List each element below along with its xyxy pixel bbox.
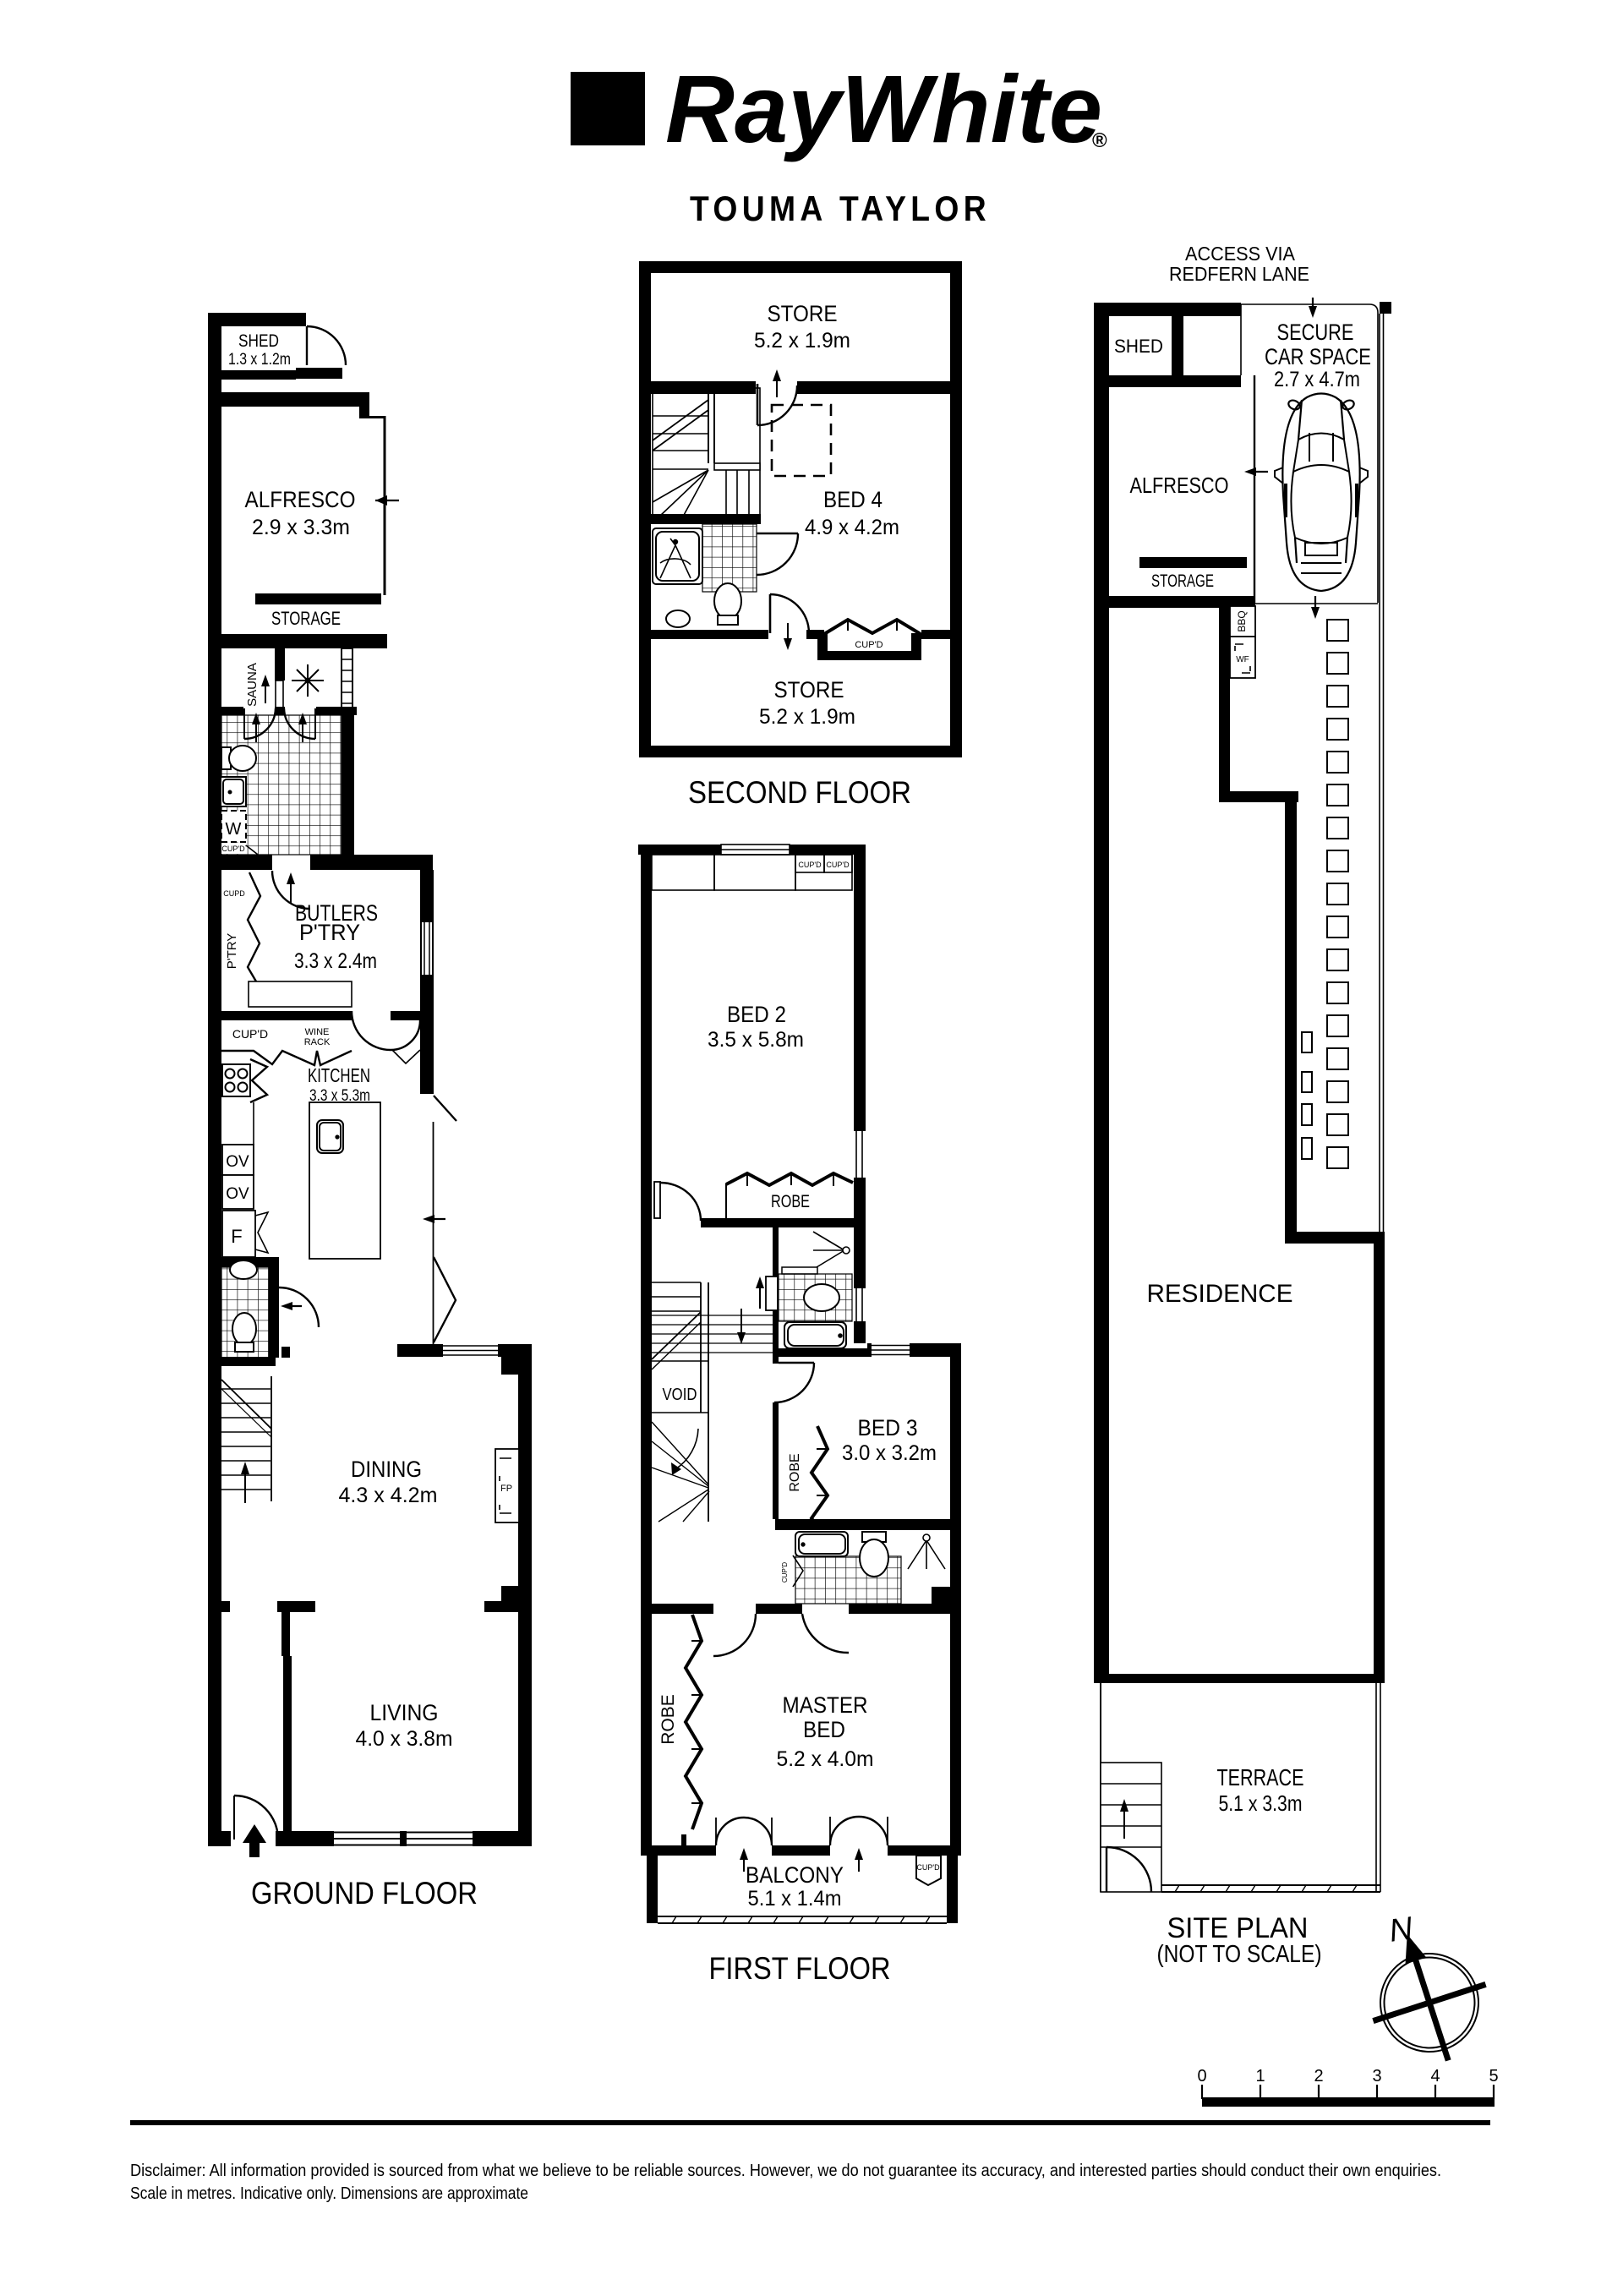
svg-text:BED 4: BED 4	[823, 487, 883, 512]
svg-text:SECURE: SECURE	[1277, 320, 1354, 345]
svg-text:KITCHEN: KITCHEN	[308, 1064, 370, 1086]
svg-text:5.2 x 1.9m: 5.2 x 1.9m	[759, 705, 855, 729]
svg-text:SAUNA: SAUNA	[245, 663, 260, 707]
svg-text:CUPD: CUPD	[223, 889, 245, 898]
svg-text:2.7 x 4.7m: 2.7 x 4.7m	[1274, 368, 1360, 391]
svg-text:CUP'D: CUP'D	[916, 1863, 940, 1872]
svg-text:5.2 x 1.9m: 5.2 x 1.9m	[754, 329, 850, 353]
svg-text:4.3 x 4.2m: 4.3 x 4.2m	[339, 1484, 438, 1507]
svg-text:RESIDENCE: RESIDENCE	[1147, 1280, 1293, 1308]
svg-text:GROUND FLOOR: GROUND FLOOR	[251, 1876, 478, 1911]
svg-text:REDFERN LANE: REDFERN LANE	[1169, 263, 1309, 285]
svg-text:SHED: SHED	[1114, 336, 1163, 357]
svg-text:FP: FP	[500, 1484, 512, 1494]
svg-text:P'TRY: P'TRY	[225, 933, 239, 970]
svg-text:3.3 x 2.4m: 3.3 x 2.4m	[294, 949, 377, 973]
svg-text:ROBE: ROBE	[788, 1453, 802, 1491]
svg-text:BBQ: BBQ	[1236, 610, 1248, 631]
svg-text:2.9 x 3.3m: 2.9 x 3.3m	[252, 516, 350, 539]
svg-text:F: F	[231, 1226, 242, 1247]
svg-text:P'TRY: P'TRY	[299, 920, 360, 945]
svg-text:CUP'D: CUP'D	[855, 640, 883, 650]
svg-text:OV: OV	[226, 1185, 249, 1203]
svg-text:WINE: WINE	[305, 1027, 330, 1037]
svg-text:3: 3	[1372, 2067, 1381, 2086]
svg-text:1: 1	[1255, 2067, 1265, 2086]
svg-text:STORAGE: STORAGE	[271, 608, 341, 629]
svg-text:4: 4	[1430, 2067, 1440, 2086]
svg-text:SHED: SHED	[238, 331, 279, 351]
svg-text:CUP'D: CUP'D	[826, 861, 850, 869]
svg-text:WF: WF	[1236, 655, 1249, 664]
svg-text:ROBE: ROBE	[658, 1694, 678, 1745]
svg-text:CAR SPACE: CAR SPACE	[1265, 344, 1371, 369]
svg-text:Disclaimer: All information pr: Disclaimer: All information provided is …	[130, 2162, 1441, 2180]
svg-text:STORE: STORE	[768, 301, 838, 326]
svg-text:(NOT TO SCALE): (NOT TO SCALE)	[1157, 1941, 1322, 1968]
svg-text:1.3 x 1.2m: 1.3 x 1.2m	[228, 351, 291, 369]
svg-text:CUP'D: CUP'D	[232, 1027, 268, 1041]
svg-text:5.1 x 1.4m: 5.1 x 1.4m	[748, 1887, 842, 1911]
svg-text:5: 5	[1489, 2067, 1498, 2086]
svg-text:BALCONY: BALCONY	[746, 1862, 844, 1888]
svg-text:5.1 x 3.3m: 5.1 x 3.3m	[1219, 1790, 1303, 1816]
svg-text:LIVING: LIVING	[370, 1700, 439, 1725]
svg-text:STORE: STORE	[774, 677, 844, 702]
svg-text:CUP'D: CUP'D	[798, 861, 822, 869]
svg-text:TERRACE: TERRACE	[1217, 1764, 1304, 1790]
svg-text:BED: BED	[803, 1717, 845, 1742]
svg-text:BED 3: BED 3	[858, 1415, 918, 1440]
svg-text:FIRST FLOOR: FIRST FLOOR	[709, 1951, 891, 1986]
svg-text:ALFRESCO: ALFRESCO	[245, 487, 356, 512]
svg-text:Scale in metres. Indicative on: Scale in metres. Indicative only. Dimens…	[130, 2184, 528, 2203]
svg-text:2: 2	[1314, 2067, 1323, 2086]
svg-text:RACK: RACK	[304, 1037, 331, 1047]
svg-text:TOUMA TAYLOR: TOUMA TAYLOR	[690, 189, 991, 228]
svg-text:W: W	[226, 820, 242, 839]
svg-text:MASTER: MASTER	[783, 1692, 868, 1718]
svg-text:CUP'D: CUP'D	[781, 1562, 789, 1583]
svg-text:ROBE: ROBE	[771, 1192, 810, 1211]
svg-text:RayWhite: RayWhite	[665, 56, 1102, 162]
svg-text:OV: OV	[226, 1153, 249, 1171]
svg-text:®: ®	[1092, 129, 1107, 152]
svg-text:ALFRESCO: ALFRESCO	[1130, 473, 1229, 498]
svg-text:3.5 x 5.8m: 3.5 x 5.8m	[708, 1028, 804, 1052]
svg-text:SECOND FLOOR: SECOND FLOOR	[688, 775, 911, 810]
svg-text:CUP'D: CUP'D	[221, 845, 245, 853]
svg-text:5.2 x 4.0m: 5.2 x 4.0m	[777, 1747, 874, 1771]
svg-text:0: 0	[1197, 2067, 1206, 2086]
svg-text:STORAGE: STORAGE	[1151, 571, 1214, 591]
svg-text:4.9 x 4.2m: 4.9 x 4.2m	[805, 516, 899, 539]
svg-text:4.0 x 3.8m: 4.0 x 3.8m	[356, 1727, 453, 1751]
svg-text:VOID: VOID	[663, 1386, 697, 1404]
svg-text:SITE PLAN: SITE PLAN	[1167, 1912, 1309, 1944]
svg-text:ACCESS VIA: ACCESS VIA	[1185, 243, 1296, 265]
svg-text:BED 2: BED 2	[727, 1002, 786, 1027]
svg-text:DINING: DINING	[351, 1457, 422, 1482]
svg-text:3.0 x 3.2m: 3.0 x 3.2m	[842, 1441, 937, 1465]
